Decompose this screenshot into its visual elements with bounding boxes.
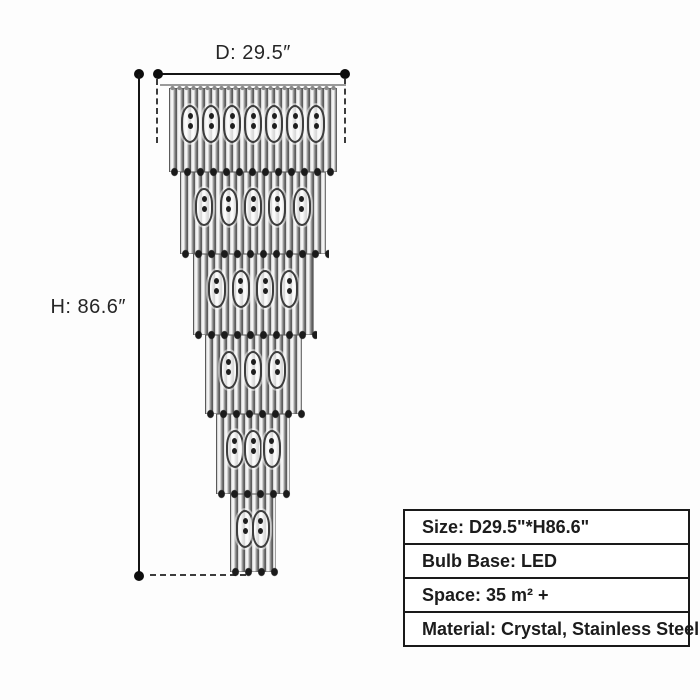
bulb-icon	[244, 188, 262, 226]
bulb-icon	[268, 351, 286, 389]
bulb-icon	[252, 510, 270, 548]
bulb-icon	[286, 105, 304, 143]
diameter-label: D: 29.5″	[215, 42, 291, 65]
dim-endpoint-dot	[340, 69, 350, 79]
chandelier-tier-1	[169, 88, 337, 172]
chandelier-illustration	[169, 88, 337, 572]
spec-row-material: Material: Crystal, Stainless Steel	[405, 611, 688, 645]
bulb-icon	[220, 351, 238, 389]
diameter-dimension-line	[158, 73, 346, 75]
height-label: H: 86.6″	[50, 296, 126, 319]
chandelier-tier-2	[180, 172, 326, 254]
spec-row-size: Size: D29.5"*H86.6"	[405, 511, 688, 543]
bulb-icon	[195, 188, 213, 226]
diameter-extent-dashed-right	[344, 79, 346, 143]
bulb-icon	[244, 430, 262, 468]
bulb-icon	[223, 105, 241, 143]
bulb-icon	[280, 270, 298, 308]
bulb-icon	[232, 270, 250, 308]
product-diagram: D: 29.5″ H: 86.6″ Size: D29.5"*H86.6" Bu…	[0, 0, 700, 700]
bulb-icon	[268, 188, 286, 226]
bulb-icon	[226, 430, 244, 468]
chandelier-tier-5	[216, 414, 290, 494]
dim-endpoint-dot	[134, 571, 144, 581]
bulb-icon	[263, 430, 281, 468]
chandelier-tier-3	[193, 254, 314, 335]
bulb-icon	[244, 351, 262, 389]
spec-table: Size: D29.5"*H86.6" Bulb Base: LED Space…	[403, 509, 690, 647]
bulb-icon	[220, 188, 238, 226]
bulb-icon	[256, 270, 274, 308]
spec-row-space: Space: 35 m² +	[405, 577, 688, 611]
bulb-icon	[244, 105, 262, 143]
bulb-icon	[293, 188, 311, 226]
height-dimension-line	[138, 74, 140, 576]
bulb-icon	[307, 105, 325, 143]
chandelier-tier-4	[205, 335, 302, 414]
chandelier-tier-6	[230, 494, 276, 572]
bulb-icon	[181, 105, 199, 143]
diameter-extent-dashed-left	[156, 79, 158, 143]
dim-endpoint-dot	[153, 69, 163, 79]
spec-row-bulb-base: Bulb Base: LED	[405, 543, 688, 577]
bulb-icon	[265, 105, 283, 143]
bulb-icon	[202, 105, 220, 143]
bulb-icon	[208, 270, 226, 308]
